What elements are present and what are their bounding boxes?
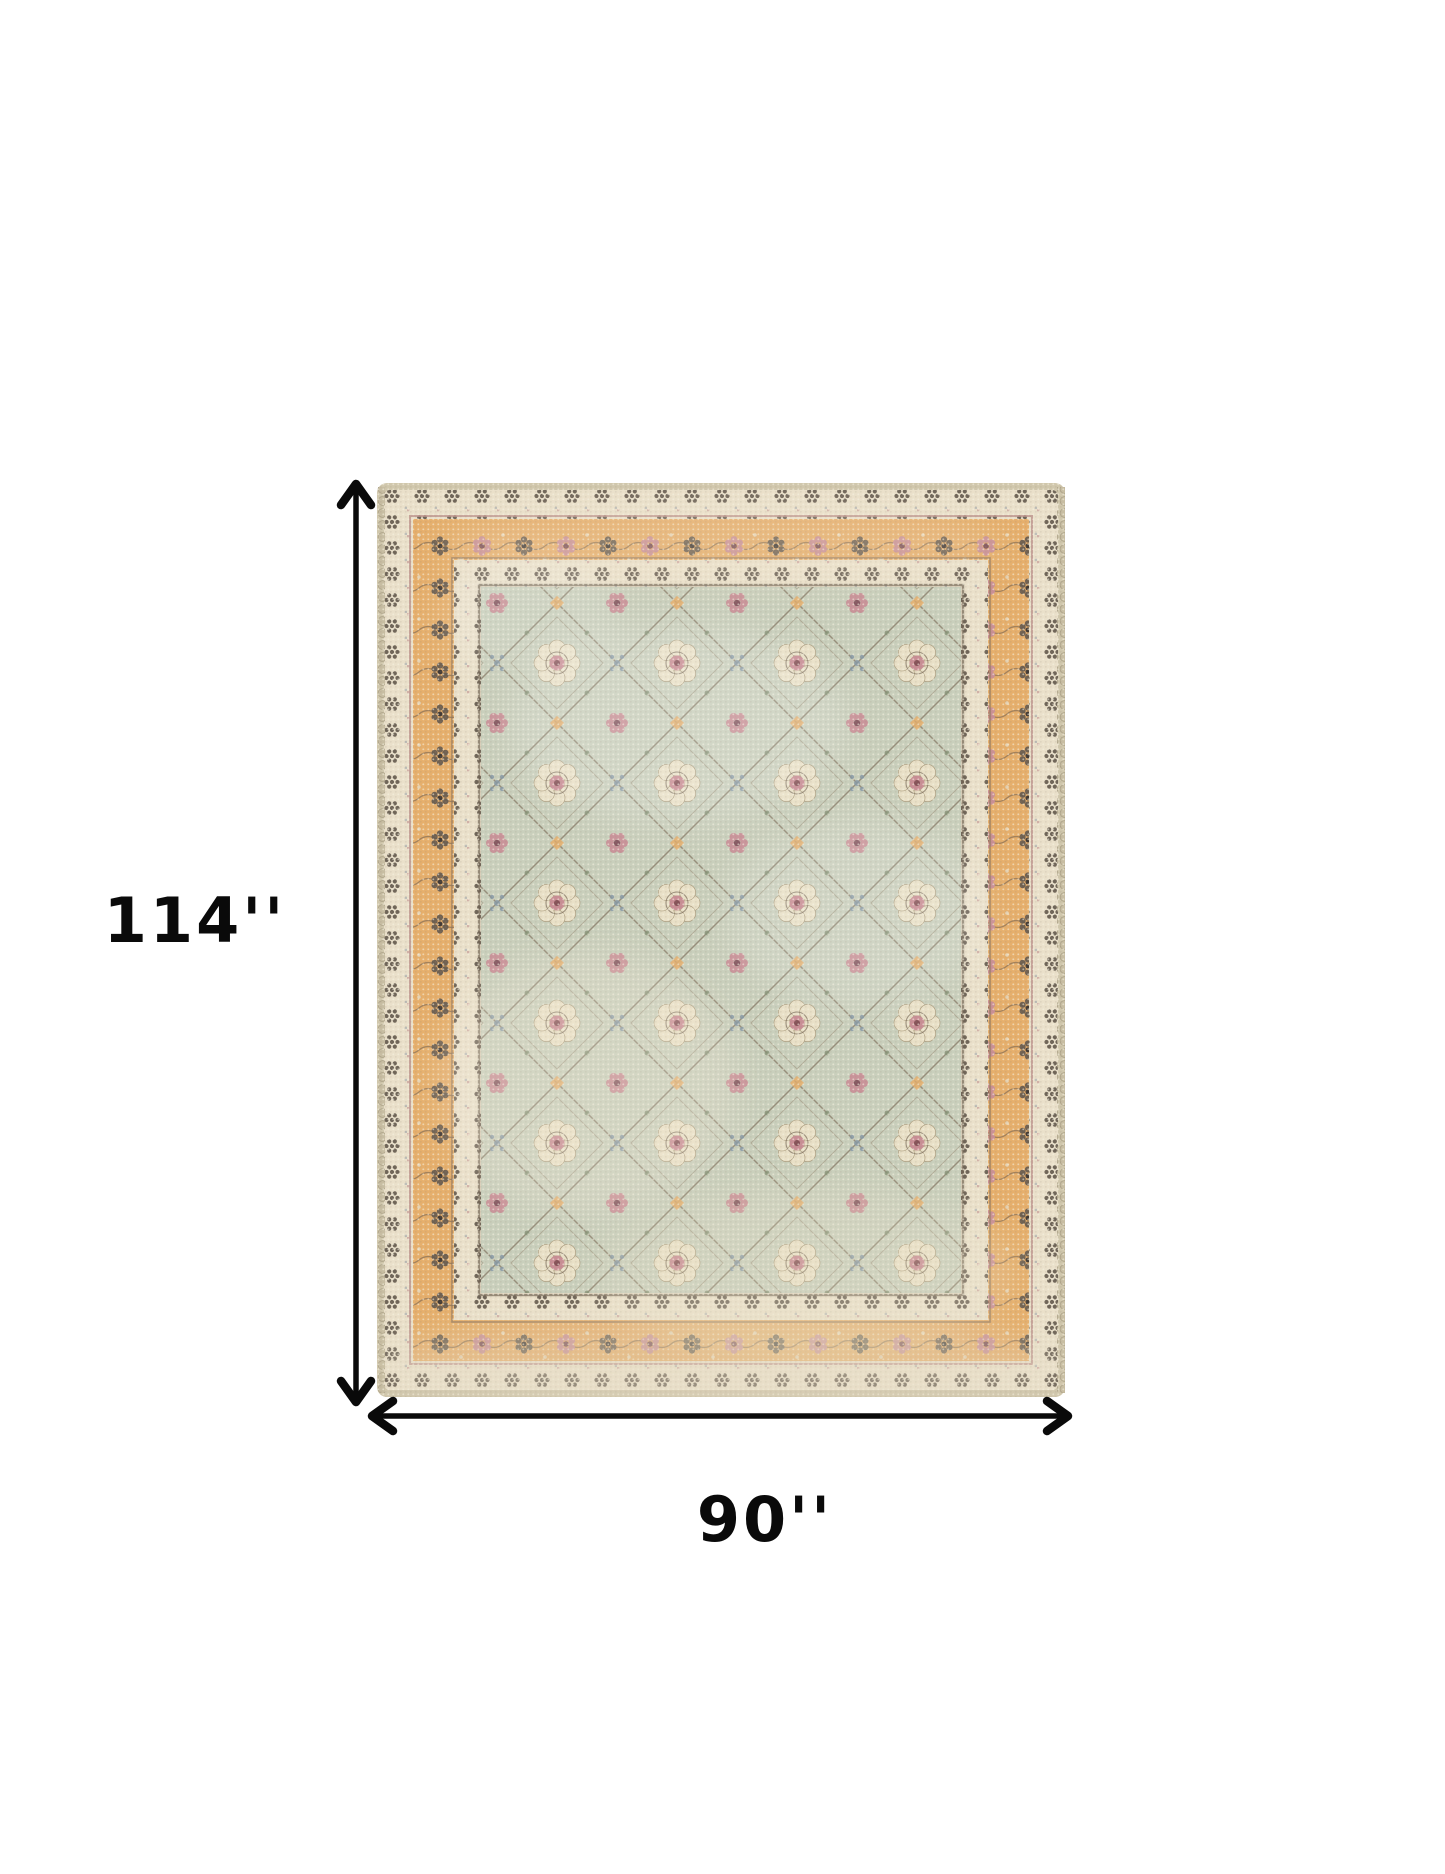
- height-dimension-label: 114'': [45, 889, 345, 953]
- width-dimension-arrow-icon: [360, 1386, 1075, 1446]
- rug-product-image: [377, 483, 1065, 1397]
- rug-artwork: [377, 483, 1065, 1397]
- width-dimension-label: 90'': [615, 1488, 915, 1552]
- rug-dimension-diagram: 114'' 90'': [0, 0, 1445, 1874]
